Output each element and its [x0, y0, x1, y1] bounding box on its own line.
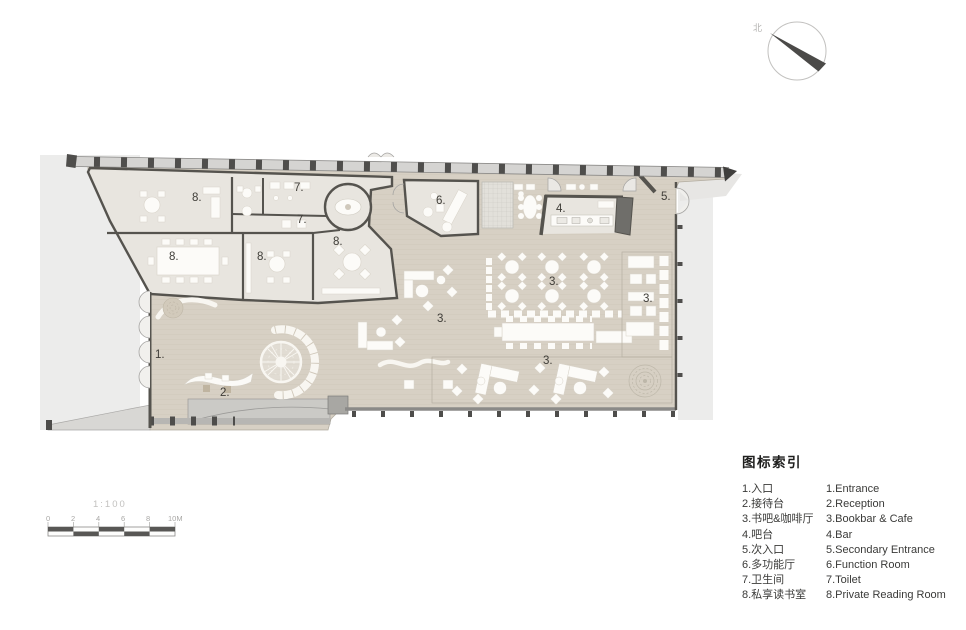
floor-mandala: [261, 342, 301, 382]
room-label-3: 3.: [437, 313, 447, 325]
legend-item-zh: 7.卫生间: [742, 573, 826, 588]
legend-item-en: 5.Secondary Entrance: [826, 543, 957, 558]
room-label-3: 3.: [543, 355, 553, 367]
entrance-door-arc: [139, 316, 150, 338]
north-label: 北: [753, 23, 762, 33]
legend-item-en: 7.Toilet: [826, 573, 957, 588]
legend-item-zh: 2.接待台: [742, 497, 826, 512]
scale-tick: 10M: [168, 514, 183, 523]
room-label-3: 3.: [643, 293, 653, 305]
scale-ratio: 1:100: [93, 499, 127, 510]
bar-area: [541, 195, 633, 235]
legend-item-zh: 5.次入口: [742, 543, 826, 558]
room-label-6: 6.: [436, 195, 446, 207]
legend-item-en: 2.Reception: [826, 497, 957, 512]
legend-item-en: 8.Private Reading Room: [826, 588, 957, 603]
long-table: [502, 323, 594, 341]
scale-bar: 1:100 0 2 4 6 8 10M: [46, 499, 183, 536]
legend-item-zh: 4.吧台: [742, 528, 826, 543]
legend-item-en: 1.Entrance: [826, 482, 957, 497]
scale-tick: 8: [146, 514, 150, 523]
room-label-8: 8.: [192, 192, 202, 204]
room-label-2: 2.: [220, 387, 230, 399]
room-label-8: 8.: [257, 251, 267, 263]
room-label-7: 7.: [294, 182, 304, 194]
legend-item-en: 4.Bar: [826, 528, 957, 543]
room-label-3: 3.: [549, 276, 559, 288]
room-label-1: 1.: [155, 349, 165, 361]
legend-item-zh: 6.多功能厅: [742, 558, 826, 573]
south-wall: [345, 409, 676, 414]
legend-item-en: 3.Bookbar & Cafe: [826, 512, 957, 527]
legend-item-zh: 1.入口: [742, 482, 826, 497]
grid-mat: [482, 182, 513, 228]
legend-grid: 1.入口1.Entrance 2.接待台2.Reception 3.书吧&咖啡厅…: [742, 482, 957, 604]
room-label-8: 8.: [169, 251, 179, 263]
room-label-8: 8.: [333, 236, 343, 248]
scale-tick: 6: [121, 514, 125, 523]
legend-item-zh: 8.私享读书室: [742, 588, 826, 603]
legend: 图标索引 1.入口1.Entrance 2.接待台2.Reception 3.书…: [742, 451, 957, 604]
entrance-door-arc: [139, 291, 150, 313]
north-compass: 北: [753, 22, 826, 80]
entrance-door-arc: [139, 366, 150, 388]
legend-title: 图标索引: [742, 451, 957, 471]
legend-item-zh: 3.书吧&咖啡厅: [742, 512, 826, 527]
room-label-7: 7.: [297, 214, 307, 226]
entrance-door-arc: [139, 341, 150, 363]
scale-tick: 0: [46, 514, 50, 523]
room-label-4: 4.: [556, 203, 566, 215]
room-label-5: 5.: [661, 191, 671, 203]
legend-item-en: 6.Function Room: [826, 558, 957, 573]
page: 1. 2. 3. 3. 3. 3. 4. 5. 6. 7. 7. 8. 8. 8…: [0, 0, 966, 630]
scale-tick-labels: 0 2 4 6 8 10M: [46, 514, 183, 523]
scale-tick: 2: [71, 514, 75, 523]
scale-tick: 4: [96, 514, 100, 523]
planter: [163, 298, 183, 318]
